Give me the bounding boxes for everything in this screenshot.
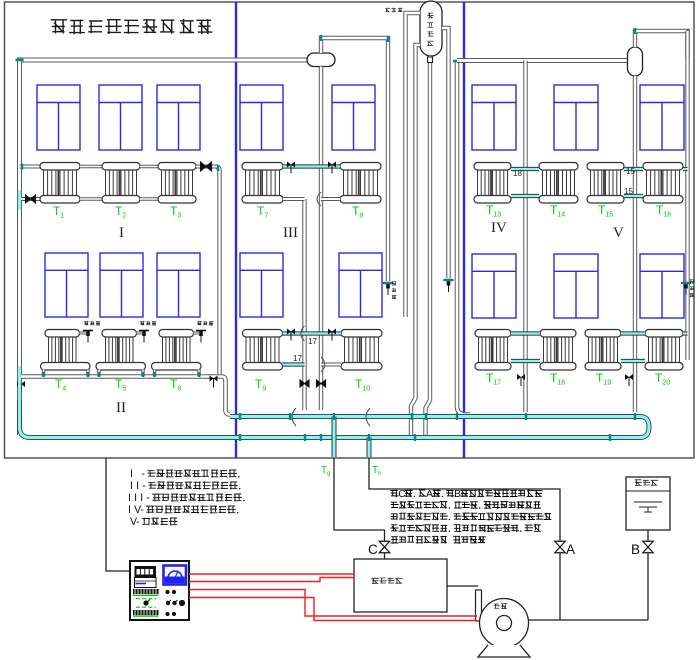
svg-text:I: I: [134, 492, 137, 504]
svg-text:C: C: [398, 489, 405, 500]
svg-text:I: I: [140, 492, 143, 504]
svg-text:-: -: [140, 504, 144, 516]
svg-text:15: 15: [624, 187, 633, 196]
svg-text:A: A: [426, 489, 433, 500]
svg-text:IV: IV: [491, 220, 507, 236]
svg-text:I: I: [130, 480, 133, 492]
svg-text:I: I: [128, 492, 131, 504]
svg-text:17: 17: [293, 354, 302, 363]
svg-text:V: V: [613, 225, 624, 241]
svg-text:I: I: [128, 504, 131, 516]
svg-text:17: 17: [308, 337, 317, 346]
svg-text:-: -: [141, 468, 145, 480]
svg-text:-: -: [142, 480, 146, 492]
svg-text:III: III: [283, 225, 298, 241]
svg-text:C: C: [368, 542, 378, 557]
svg-text:B: B: [454, 489, 461, 500]
svg-text:15: 15: [626, 167, 635, 176]
svg-text:-: -: [136, 516, 140, 528]
svg-text:18: 18: [513, 169, 522, 178]
svg-text:I: I: [130, 468, 133, 480]
svg-text:II: II: [116, 400, 126, 416]
svg-text:I: I: [136, 480, 139, 492]
svg-text:A: A: [566, 542, 575, 557]
svg-text:-: -: [146, 492, 150, 504]
svg-text:I: I: [119, 225, 124, 241]
svg-text:B: B: [631, 542, 640, 557]
